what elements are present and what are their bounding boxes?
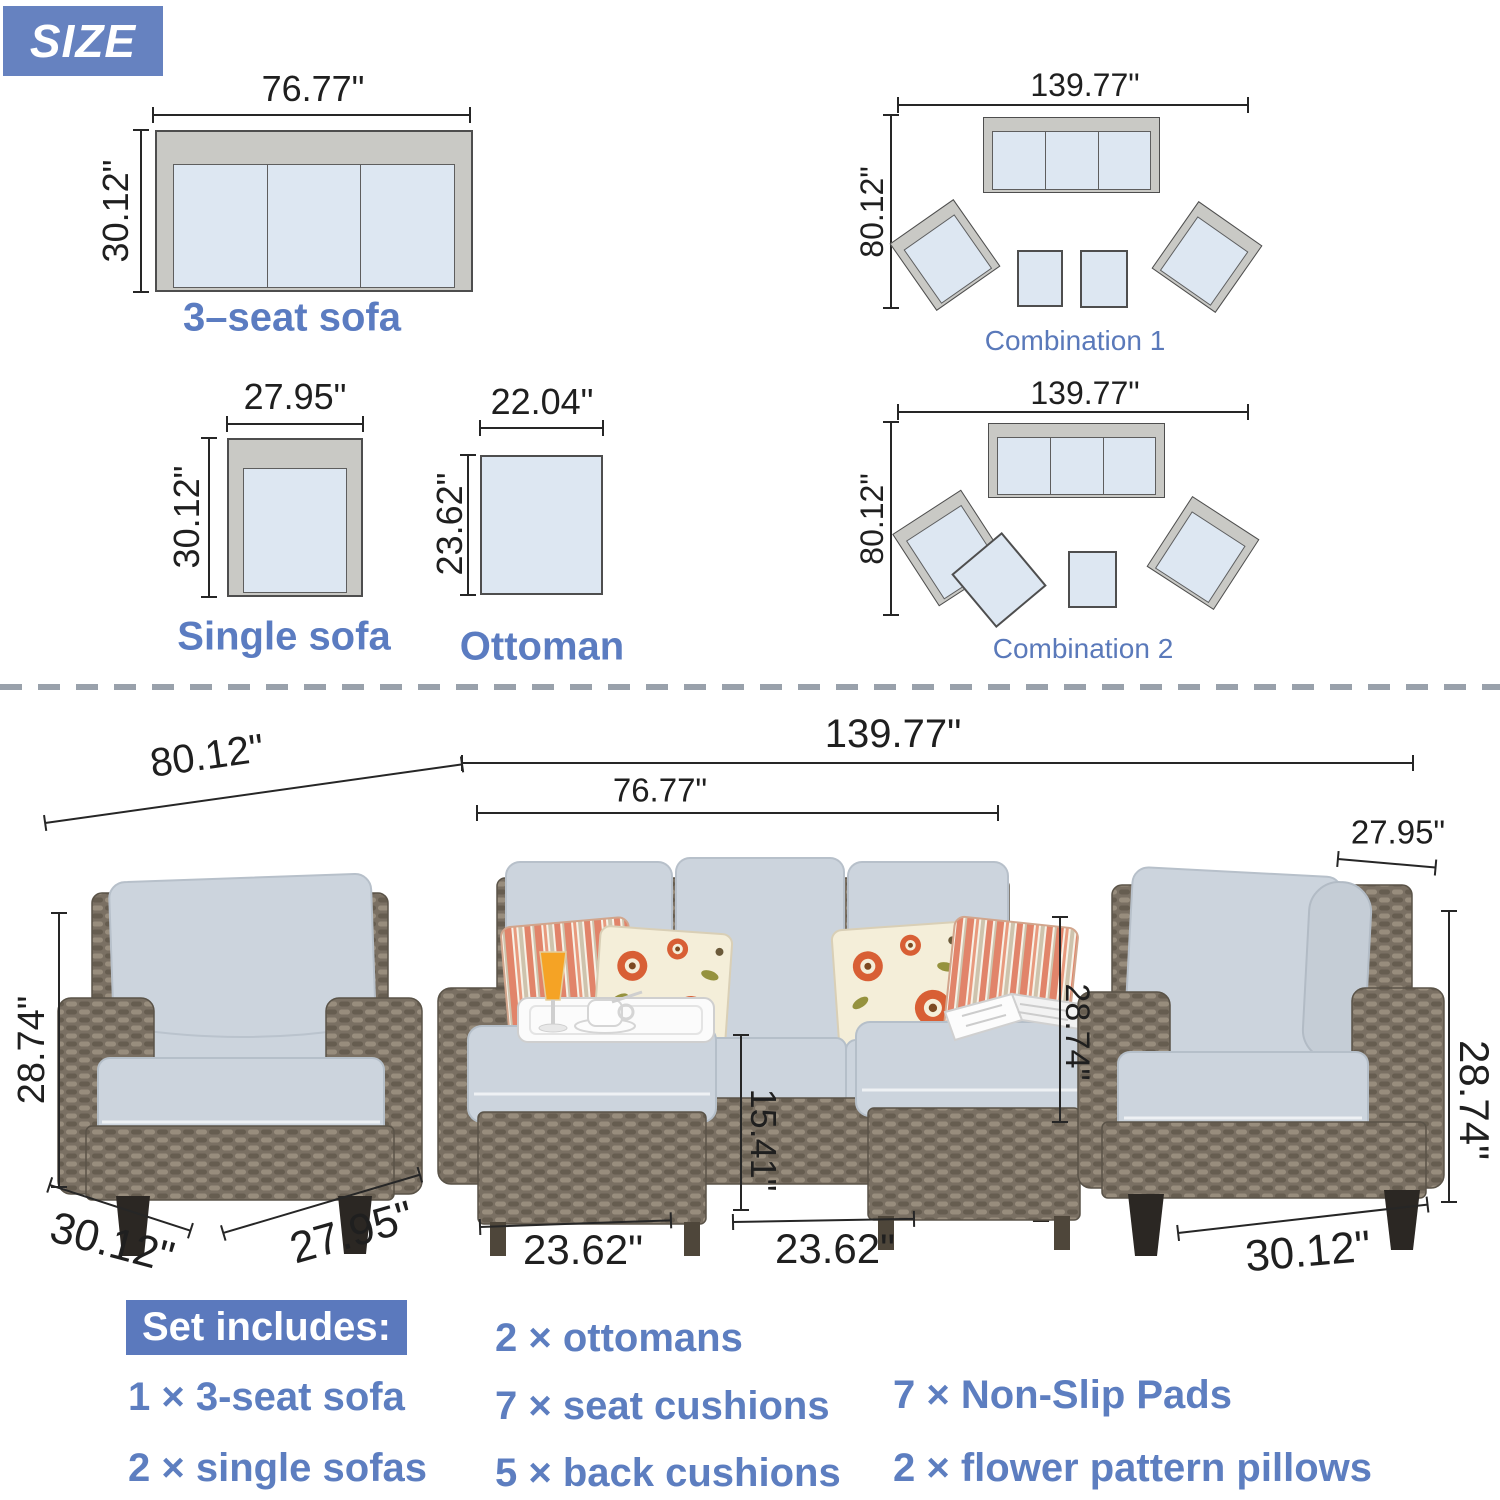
size-badge: SIZE xyxy=(3,6,163,76)
set-includes-item-sofa: 1 × 3-seat sofa xyxy=(128,1375,405,1420)
ottoman-height-label: 15.41" xyxy=(745,1089,781,1192)
single-width-line xyxy=(227,423,363,425)
combo1-caption: Combination 1 xyxy=(985,325,1166,357)
set-includes-item-nonslip-pads: 7 × Non-Slip Pads xyxy=(893,1373,1232,1418)
right-chair-width-label: 27.95" xyxy=(1351,816,1445,849)
combo2-width-line xyxy=(898,411,1248,413)
ottoman-caption: Ottoman xyxy=(460,625,624,670)
combo1-left-chair xyxy=(890,199,1001,311)
photo-width-label: 139.77" xyxy=(825,714,962,754)
single-caption: Single sofa xyxy=(177,615,390,660)
single-width-label: 27.95" xyxy=(244,379,347,415)
combo2-sofa xyxy=(988,423,1165,498)
combo1-sofa xyxy=(983,117,1160,193)
right-chair-height-line xyxy=(1448,911,1450,1202)
ottoman2-width-label: 23.62" xyxy=(775,1228,895,1270)
combo1-right-chair xyxy=(1152,201,1263,313)
photo-sofa-width-label: 76.77" xyxy=(613,774,707,807)
combo1-ottoman-2 xyxy=(1080,250,1128,308)
sofa3-width-label: 76.77" xyxy=(262,71,365,107)
ottoman1-width-label: 23.62" xyxy=(523,1229,643,1271)
sofa3-depth-label: 30.12" xyxy=(98,160,134,263)
sofa3-seat-area xyxy=(173,164,455,288)
sofa-height-line xyxy=(1059,917,1061,1122)
set-includes-item-seat-cushions: 7 × seat cushions xyxy=(495,1384,830,1429)
ottoman-depth-line xyxy=(467,455,469,595)
combo1-width-line xyxy=(898,104,1248,106)
ottoman-topview xyxy=(480,455,603,595)
left-chair-height-label: 28.74" xyxy=(13,996,51,1105)
set-includes-item-flower-pillows: 2 × flower pattern pillows xyxy=(893,1446,1372,1491)
sofa3-depth-line xyxy=(140,130,142,292)
sofa3-width-line xyxy=(153,114,470,116)
ottoman-width-label: 22.04" xyxy=(491,384,594,420)
combo2-depth-label: 80.12" xyxy=(856,473,888,564)
single-seat-area xyxy=(243,468,347,593)
sofa3-caption: 3–seat sofa xyxy=(183,296,401,341)
right-chair-height-label: 28.74" xyxy=(1453,1040,1495,1160)
combo2-right-chair xyxy=(1147,496,1260,610)
set-includes-item-ottomans: 2 × ottomans xyxy=(495,1316,743,1361)
combo2-center-ottoman xyxy=(1068,551,1117,608)
combo1-depth-label: 80.12" xyxy=(856,166,888,257)
ottoman-width-line xyxy=(480,427,603,429)
set-includes-item-back-cushions: 5 × back cushions xyxy=(495,1451,841,1496)
single-topview xyxy=(227,438,363,597)
set-includes-title: Set includes: xyxy=(126,1300,407,1355)
left-armchair xyxy=(58,873,422,1256)
dashed-divider xyxy=(0,684,1500,690)
sofa3-topview xyxy=(155,130,473,292)
sofa-height-label: 28.74" xyxy=(1060,983,1094,1080)
combo2-depth-line xyxy=(890,422,892,615)
single-depth-line xyxy=(208,438,210,597)
left-chair-height-line xyxy=(58,913,60,1187)
right-chair-leg xyxy=(1384,1190,1420,1250)
combo1-depth-line xyxy=(890,115,892,308)
ottoman-height-line xyxy=(740,1035,742,1210)
ottoman-depth-label: 23.62" xyxy=(432,473,468,576)
combo2-caption: Combination 2 xyxy=(993,633,1174,665)
photo-width-line xyxy=(462,762,1413,764)
size-infographic: SIZE 76.77" 30.12" 3–seat sofa 27.95" 30… xyxy=(0,0,1500,1500)
right-chair-leg xyxy=(1128,1194,1164,1256)
combo1-ottoman-1 xyxy=(1017,250,1063,307)
photo-sofa-width-line xyxy=(477,812,998,814)
right-armchair xyxy=(1078,867,1444,1256)
combo2-width-label: 139.77" xyxy=(1030,377,1139,409)
right-chair-depth-label: 30.12" xyxy=(1243,1225,1372,1280)
combo1-width-label: 139.77" xyxy=(1030,69,1139,101)
single-depth-label: 30.12" xyxy=(169,466,205,569)
furniture-photo xyxy=(0,700,1500,1300)
set-includes-item-single-sofas: 2 × single sofas xyxy=(128,1446,427,1491)
